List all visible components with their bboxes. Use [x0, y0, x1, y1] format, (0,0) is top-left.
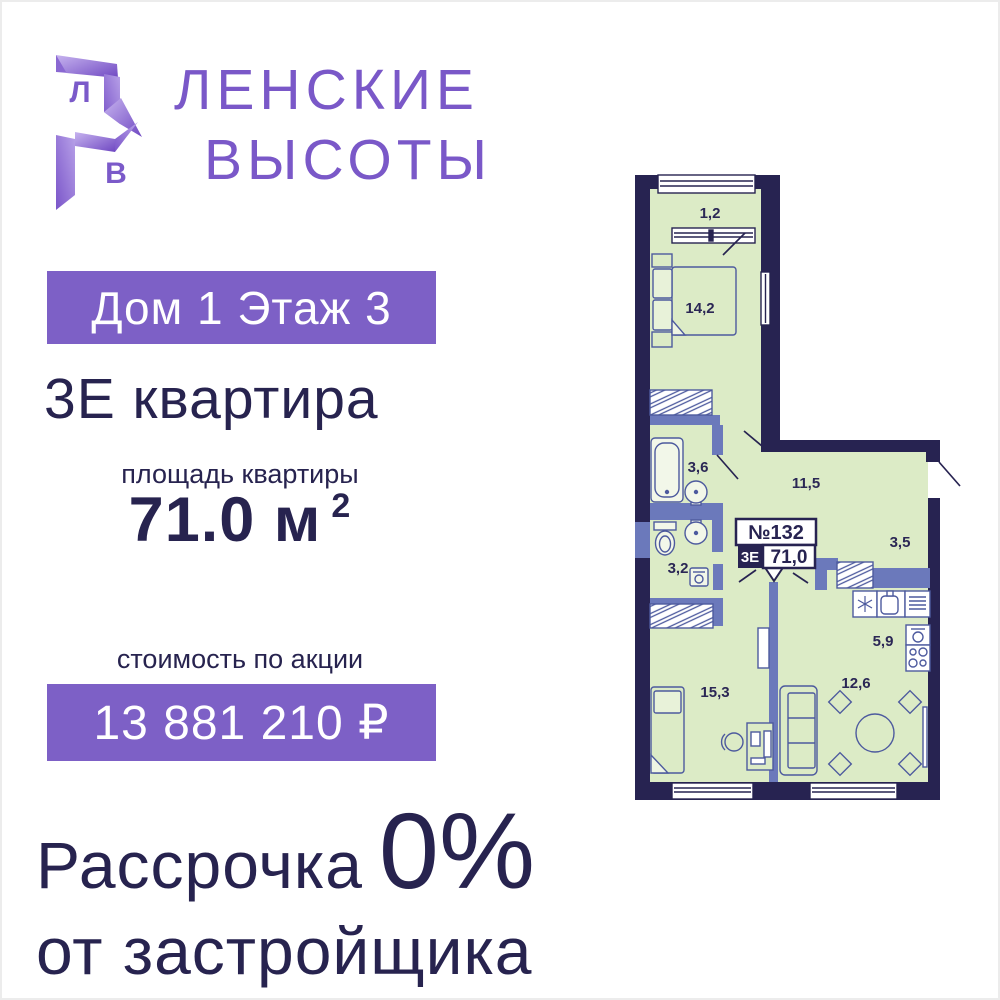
- sofa-icon: [780, 686, 817, 775]
- room-area-bedroom2: 15,3: [700, 684, 729, 701]
- price-label: стоимость по акции: [45, 644, 435, 675]
- price-badge: 13 881 210 ₽: [47, 684, 436, 761]
- laundry-basket-icon: [690, 568, 708, 586]
- room-area-hall: 3,5: [890, 534, 911, 551]
- logo-line1: ЛЕНСКИЕ: [174, 56, 492, 126]
- room-area-bathroom: 3,6: [688, 459, 709, 476]
- stove-icon: [906, 645, 930, 671]
- promo-percent: 0%: [379, 788, 535, 913]
- single-bed-icon: [651, 687, 684, 773]
- area-number: 71.0 м: [129, 485, 322, 555]
- house-floor-badge: Дом 1 Этаж 3: [47, 271, 436, 344]
- logo-icon: Л В: [42, 40, 167, 230]
- tv-icon: [923, 707, 927, 767]
- washing-machine-icon: [906, 625, 930, 645]
- fridge-icon: [853, 591, 877, 617]
- window: [761, 272, 770, 325]
- logo-wordmark: ЛЕНСКИЕ ВЫСОТЫ: [174, 56, 492, 195]
- wardrobe-hatch: [837, 562, 873, 588]
- ad-canvas: Л В ЛЕНСКИЕ ВЫСОТЫ Дом 1 Этаж 3 3Е кварт…: [0, 0, 1000, 1000]
- promo-block: Рассрочка 0% от застройщика: [36, 788, 535, 989]
- entrance-door-swing: [939, 462, 960, 486]
- unit-area: 71,0: [771, 547, 808, 568]
- unit-type: 3Е: [741, 549, 759, 566]
- promo-word: Рассрочка: [36, 827, 363, 903]
- room-area-living: 12,6: [841, 675, 870, 692]
- logo-line2: ВЫСОТЫ: [204, 126, 492, 196]
- room-area-bedroom: 14,2: [685, 300, 714, 317]
- room-area-kitchen: 5,9: [873, 633, 894, 650]
- window: [658, 175, 755, 193]
- room-area-balcony: 1,2: [700, 205, 721, 222]
- apartment-type-title: 3Е квартира: [44, 366, 379, 432]
- door-leaf: [758, 628, 769, 668]
- wardrobe-hatch: [650, 390, 712, 415]
- unit-number: №132: [748, 522, 804, 544]
- kitchen-sink-icon: [877, 591, 905, 617]
- window: [810, 783, 897, 799]
- bathtub-icon: [651, 438, 683, 502]
- promo-line2: от застройщика: [36, 913, 535, 989]
- room-area-corridor: 11,5: [792, 475, 820, 492]
- floorplan: №132 3Е 71,0 1,2 14,2 3,6 11,5 3,5 3,2 5…: [628, 170, 964, 812]
- window: [672, 783, 753, 799]
- room-area-wc: 3,2: [668, 560, 689, 577]
- promo-line1: Рассрочка 0%: [36, 788, 535, 913]
- desk-icon: [747, 723, 773, 770]
- area-superscript: 2: [331, 487, 351, 525]
- logo-monogram-bottom: В: [105, 157, 127, 190]
- area-value: 71.0 м2: [45, 484, 435, 556]
- logo-monogram-top: Л: [69, 76, 90, 109]
- wardrobe-hatch: [650, 604, 713, 628]
- dish-rack-icon: [905, 591, 930, 617]
- toilet-icon: [654, 522, 676, 555]
